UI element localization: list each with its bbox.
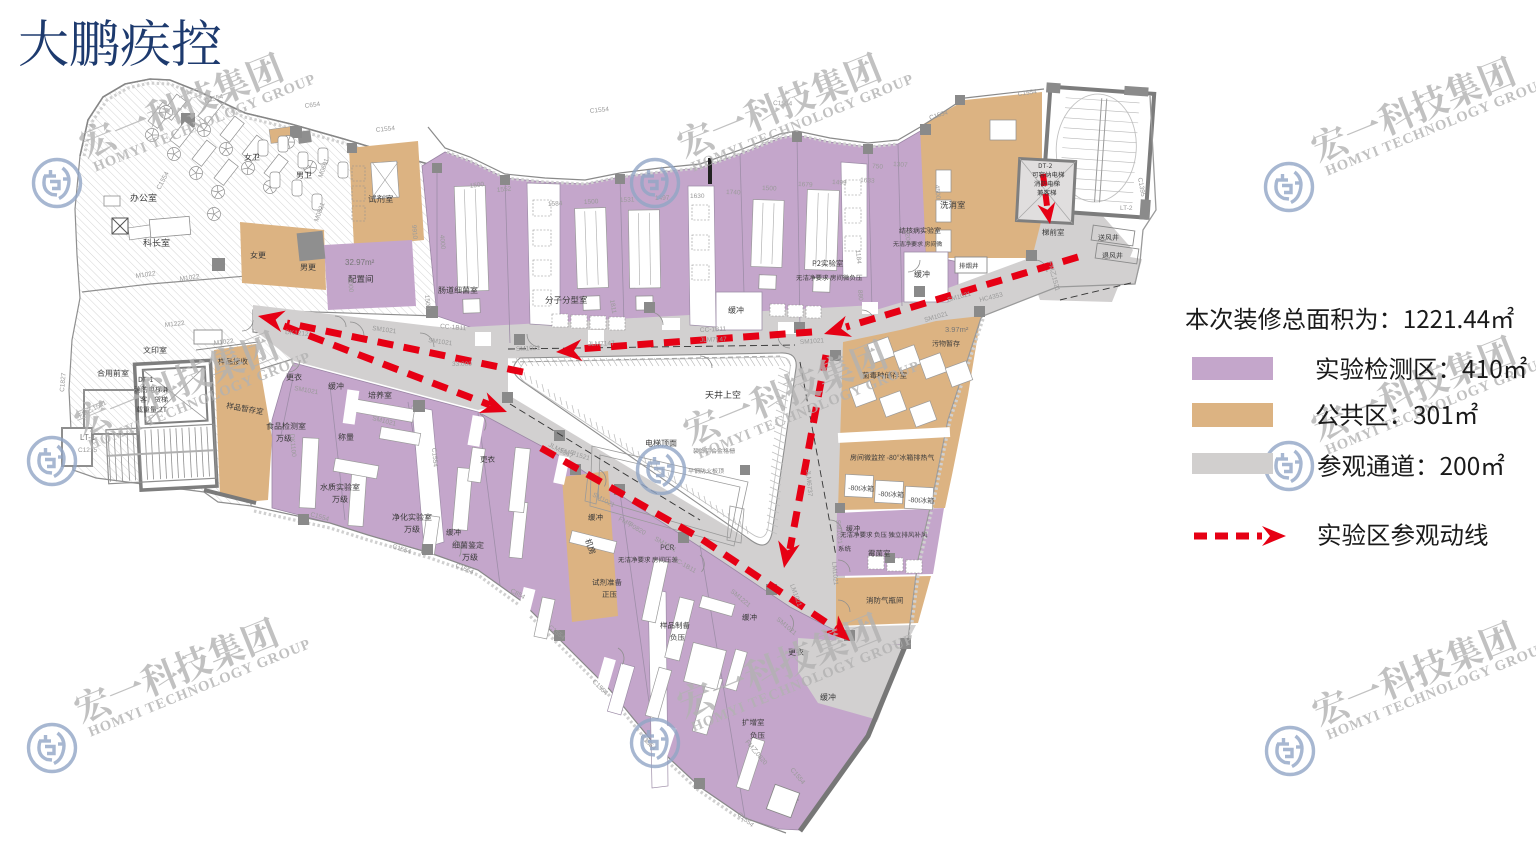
svg-text:880: 880 xyxy=(856,290,864,302)
svg-text:33.000: 33.000 xyxy=(452,361,472,368)
svg-text:4500: 4500 xyxy=(933,185,941,200)
svg-text:1679: 1679 xyxy=(798,181,813,189)
svg-text:3.97m²: 3.97m² xyxy=(945,325,969,334)
svg-text:1630: 1630 xyxy=(690,193,705,200)
svg-text:1584: 1584 xyxy=(548,200,563,208)
svg-text:32.97m²: 32.97m² xyxy=(345,258,375,267)
svg-text:4000: 4000 xyxy=(438,235,446,250)
svg-text:1184: 1184 xyxy=(854,250,862,265)
svg-text:SM1021: SM1021 xyxy=(516,345,541,353)
svg-text:1531: 1531 xyxy=(620,196,635,204)
svg-text:2000: 2000 xyxy=(346,278,354,293)
svg-text:750: 750 xyxy=(872,163,884,171)
svg-text:CC-1B11: CC-1B11 xyxy=(700,326,727,334)
svg-text:1499: 1499 xyxy=(832,179,847,187)
svg-text:3200: 3200 xyxy=(903,230,911,245)
svg-text:1500: 1500 xyxy=(423,295,431,310)
svg-text:LT-2: LT-2 xyxy=(1120,205,1133,212)
svg-text:C654: C654 xyxy=(304,101,321,110)
svg-text:JLM7147: JLM7147 xyxy=(700,336,727,344)
svg-text:1500: 1500 xyxy=(584,198,599,206)
svg-text:JLM7147: JLM7147 xyxy=(588,340,615,348)
svg-text:1633: 1633 xyxy=(860,177,875,185)
svg-text:C1554: C1554 xyxy=(375,125,395,134)
svg-text:9910: 9910 xyxy=(410,225,418,240)
svg-text:1307: 1307 xyxy=(893,161,908,169)
svg-text:1740: 1740 xyxy=(726,189,741,197)
svg-text:C1554: C1554 xyxy=(589,106,609,115)
svg-text:1500: 1500 xyxy=(762,185,777,193)
svg-text:C1827: C1827 xyxy=(59,372,68,392)
